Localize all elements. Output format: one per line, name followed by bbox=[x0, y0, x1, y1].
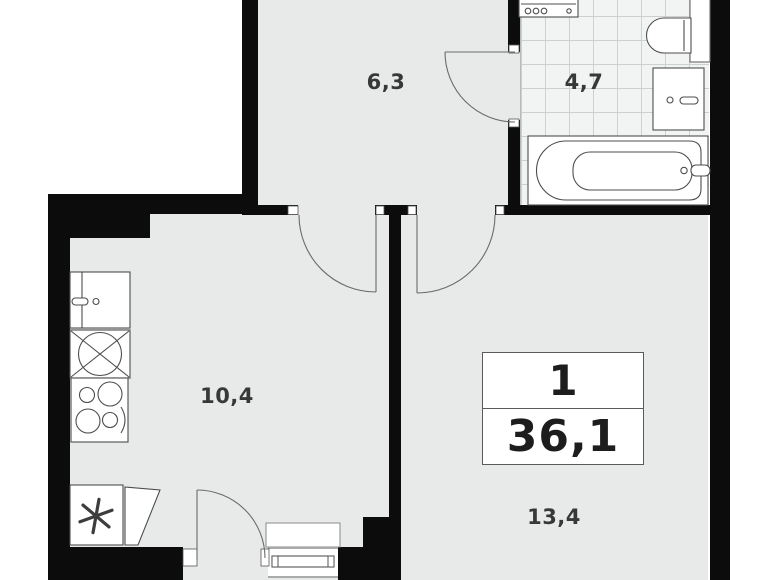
room-area-label-living-room: 13,4 bbox=[527, 505, 581, 529]
room-area-label-hallway: 6,3 bbox=[367, 70, 406, 94]
kitchen-sink-icon bbox=[70, 272, 130, 328]
door-swing-icon bbox=[197, 52, 515, 560]
fridge-door-icon bbox=[125, 487, 160, 545]
bathroom-sink-icon bbox=[653, 68, 704, 130]
room-area-label-bathroom: 4,7 bbox=[565, 70, 604, 94]
door-jambs bbox=[183, 45, 519, 566]
apartment-info-box: 1 36,1 bbox=[482, 352, 644, 465]
vent-duct-icon bbox=[690, 0, 710, 62]
fridge-icon bbox=[70, 485, 160, 545]
bathtub-icon bbox=[528, 136, 710, 205]
window-icon bbox=[268, 547, 338, 578]
apartment-rooms-count: 1 bbox=[483, 353, 643, 409]
washing-machine-top-icon bbox=[519, 0, 578, 17]
washing-machine-icon bbox=[70, 330, 130, 378]
window-sill-icon bbox=[266, 523, 340, 547]
floor-plan: 6,3 4,7 10,4 13,4 1 36,1 bbox=[0, 0, 780, 580]
apartment-total-area: 36,1 bbox=[483, 409, 643, 464]
toilet-icon bbox=[647, 18, 691, 53]
room-area-label-kitchen: 10,4 bbox=[200, 384, 254, 408]
stove-icon bbox=[71, 378, 128, 442]
